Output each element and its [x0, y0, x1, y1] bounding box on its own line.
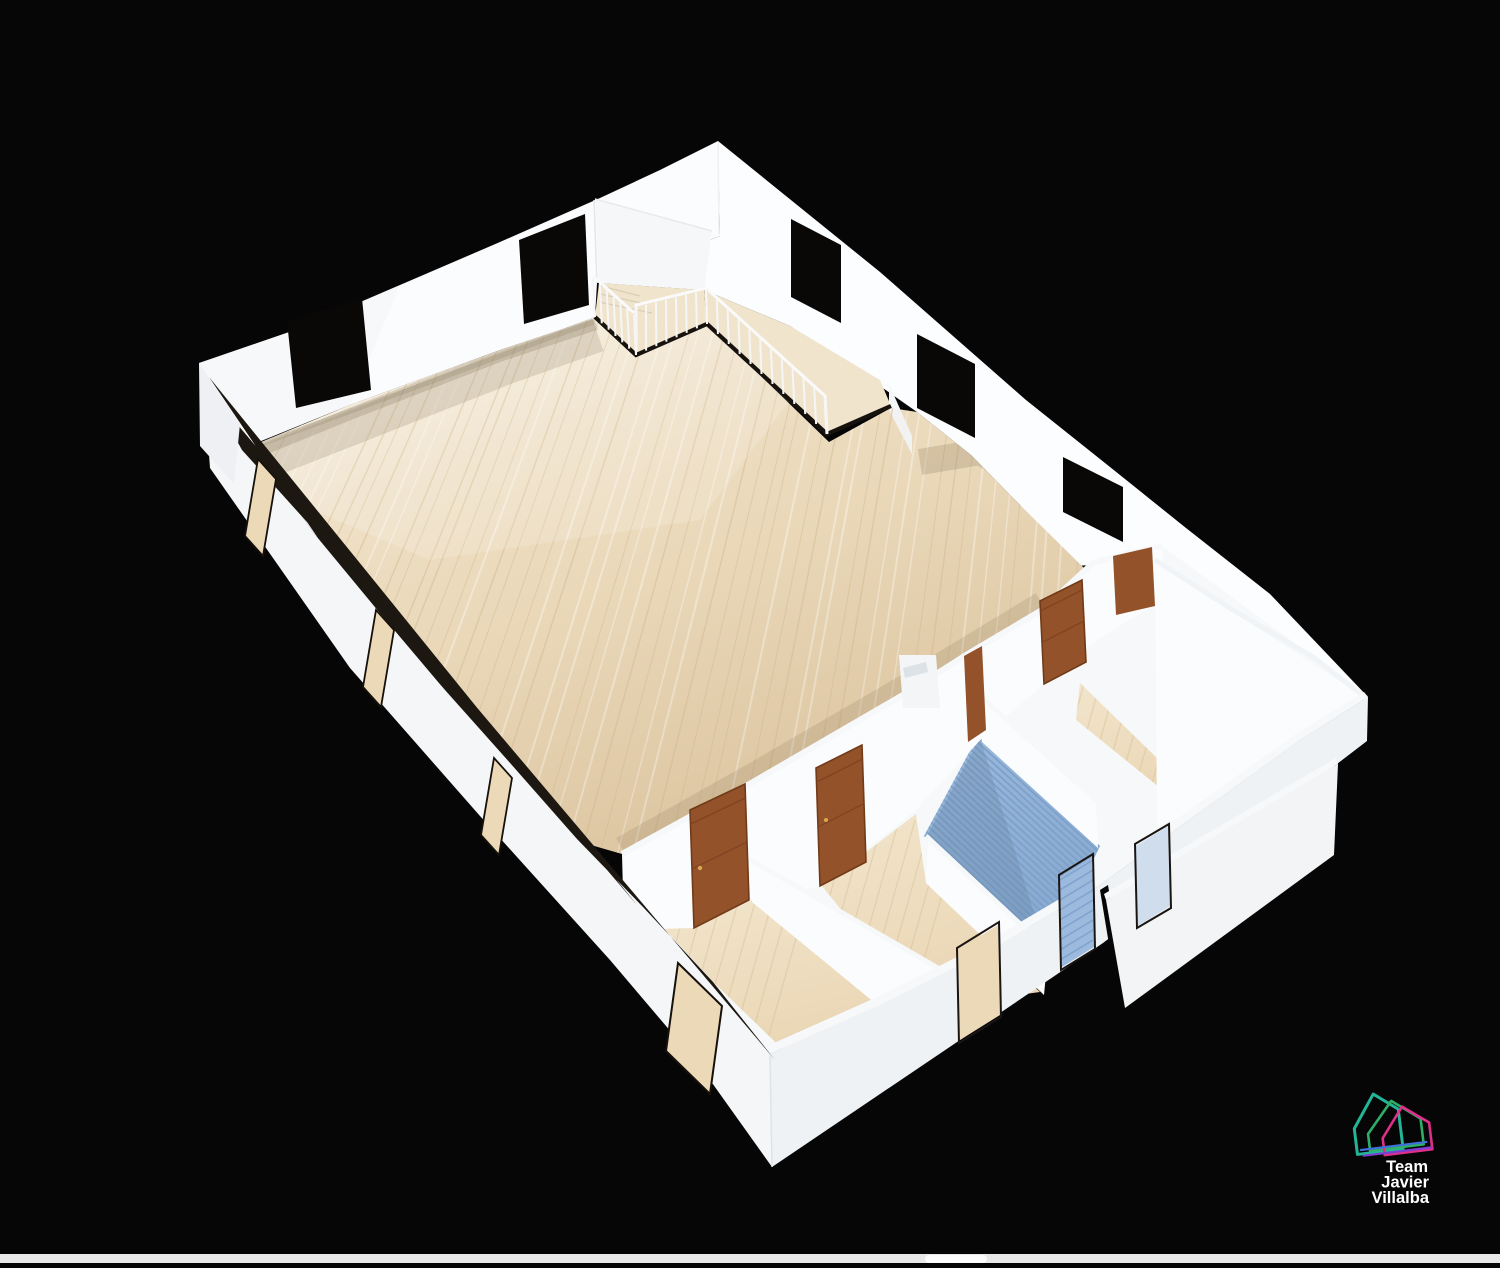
svg-text:Villalba: Villalba [1372, 1189, 1430, 1207]
